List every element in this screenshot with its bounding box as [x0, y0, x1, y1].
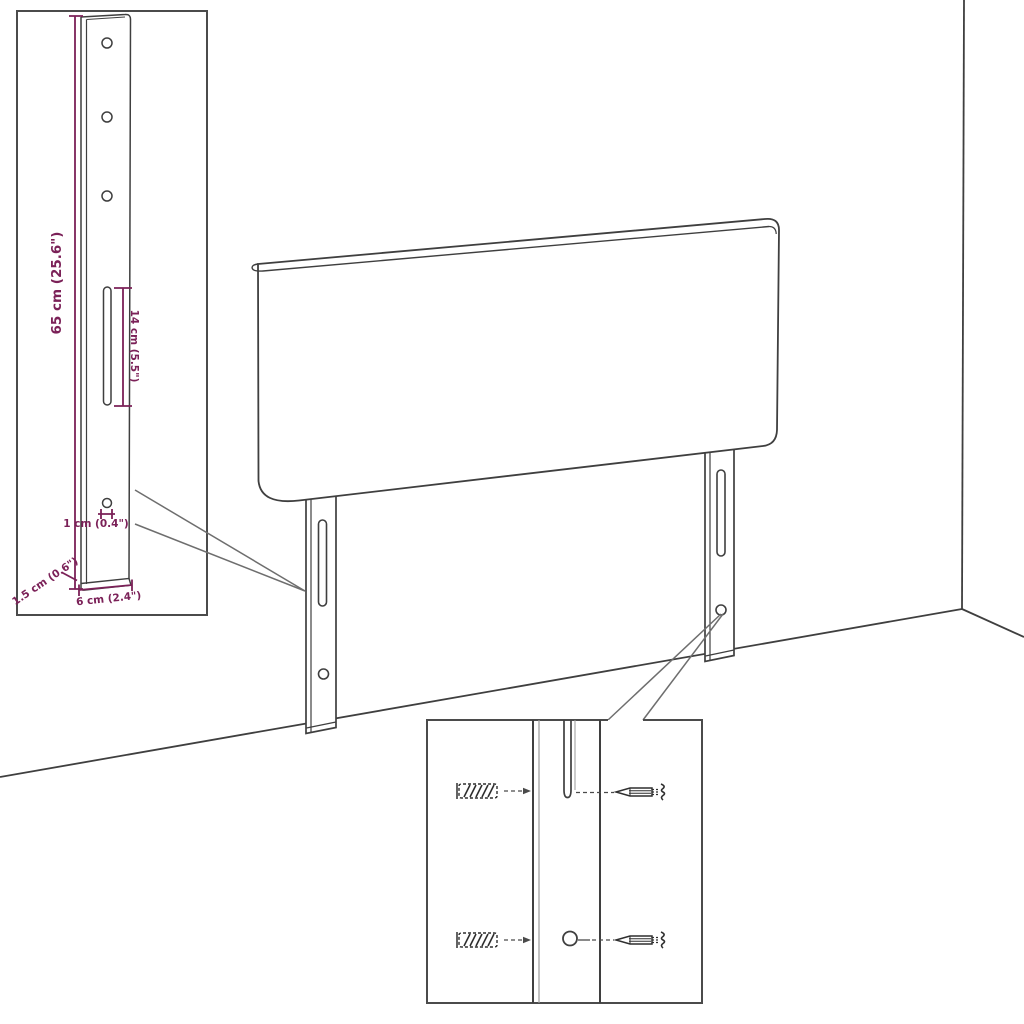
headboard-dimension-diagram: 65 cm (25.6") 14 cm (5.5") 1 cm (0.4") 6…: [0, 0, 1024, 1024]
right-mounting-leg: [705, 430, 734, 662]
headboard-panel: [252, 219, 779, 501]
wall-corner-line: [962, 0, 964, 609]
left-mounting-leg: [306, 470, 336, 734]
dim-hole-diameter-label: 1 cm (0.4"): [63, 518, 128, 530]
mounting-detail-inset: [427, 720, 702, 1003]
dim-slot-length-label: 14 cm (5.5"): [128, 310, 140, 383]
leg-detail-inset: 65 cm (25.6") 14 cm (5.5") 1 cm (0.4") 6…: [10, 11, 207, 615]
dim-height-label: 65 cm (25.6"): [49, 232, 65, 335]
floor-line-right: [962, 609, 1024, 637]
